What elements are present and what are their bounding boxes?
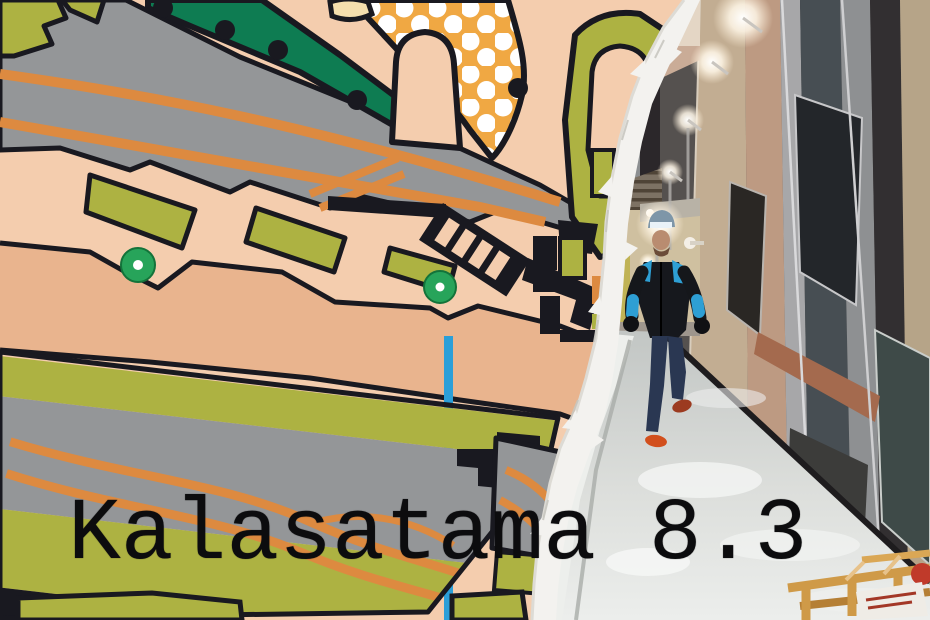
caption-text: Kalasatama 8.3: [68, 492, 807, 580]
poster-collage: Kalasatama 8.3: [0, 0, 930, 620]
